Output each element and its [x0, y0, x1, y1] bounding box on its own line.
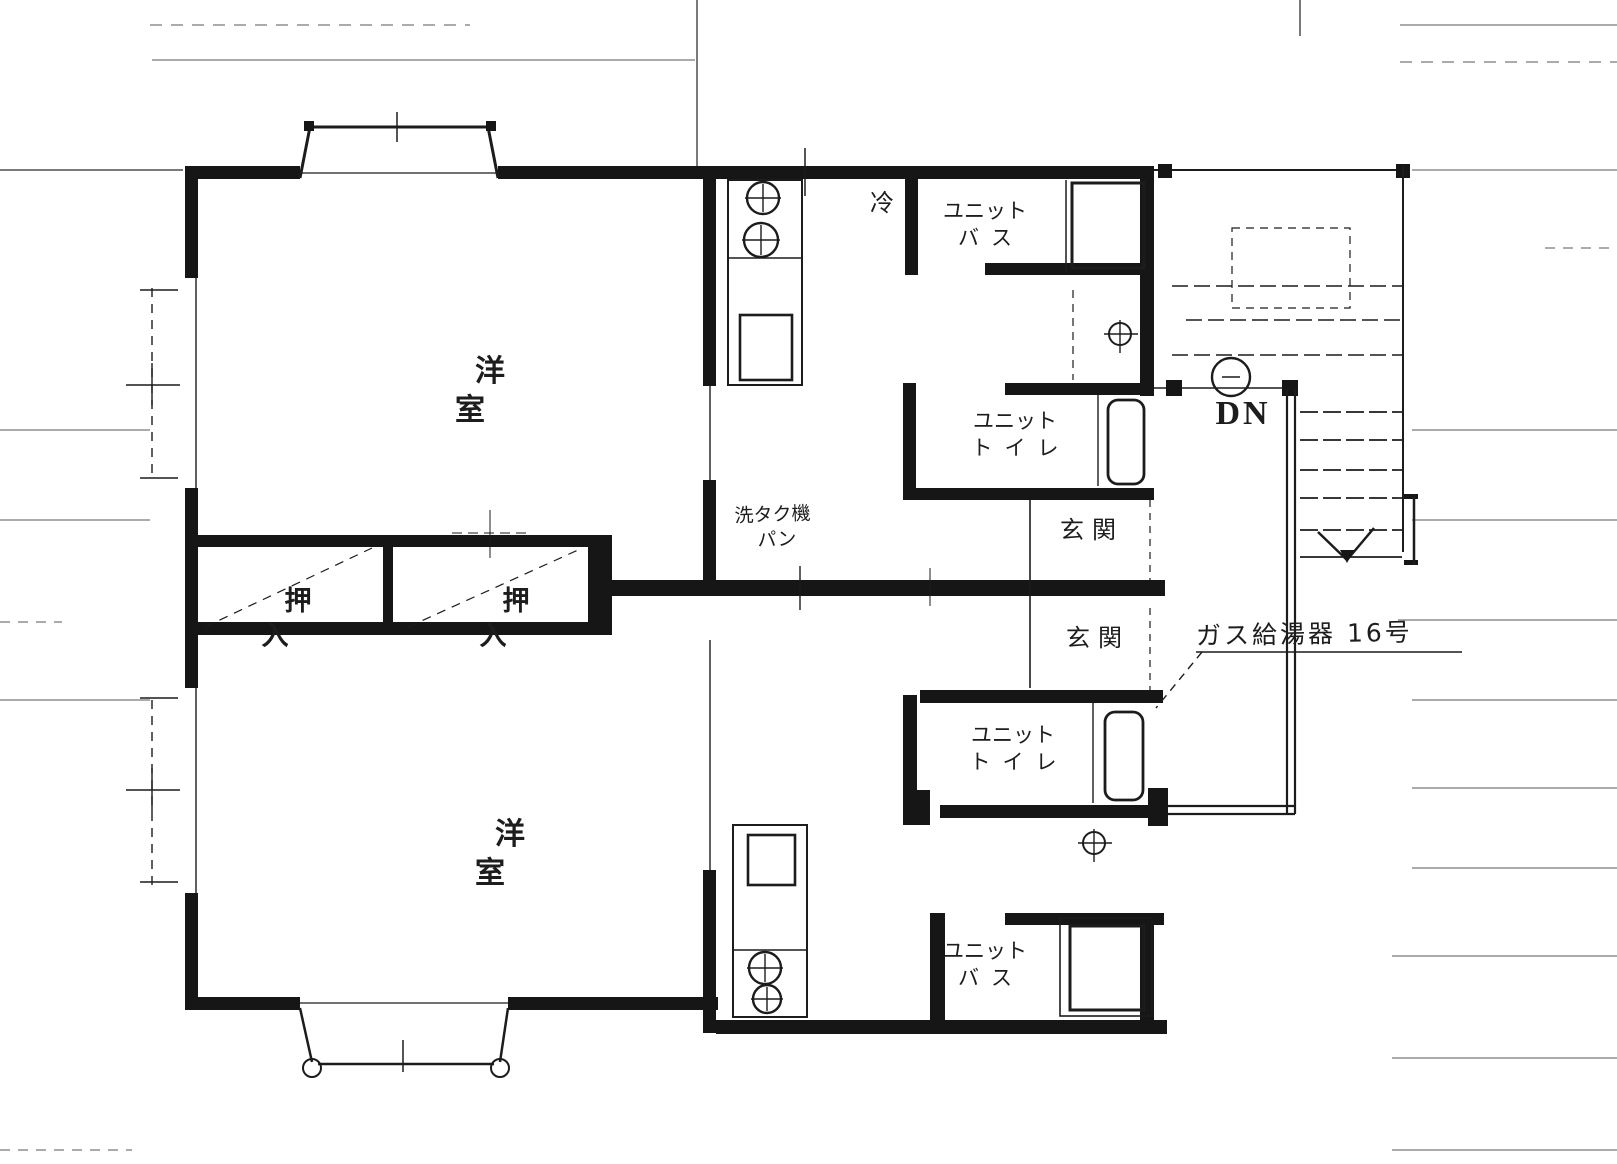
room-label-unit-toilet-lower: ユニット トイレ [943, 722, 1083, 777]
refrigerator-label: 冷 [860, 188, 904, 219]
room-label-entrance-upper: 玄関 [1040, 515, 1144, 546]
unit-bath-upper-line1: ユニット [915, 198, 1055, 225]
bay-window-bottom [300, 1008, 509, 1077]
toilet-fixture-lower [1093, 700, 1143, 803]
room-label-unit-bath-upper: ユニット バス [915, 198, 1055, 253]
unit-bath-lower-line1: ユニット [915, 938, 1055, 965]
unit-toilet-lower-line1: ユニット [943, 722, 1083, 749]
kitchen-lower [733, 825, 807, 1017]
bathtub-lower [1060, 918, 1152, 1016]
unit-toilet-upper-line1: ユニット [945, 408, 1085, 435]
room-label-western-room-upper: 洋室 [415, 352, 565, 430]
stairs-down-label: DN [1203, 392, 1283, 436]
laundry-pan-line2: パン [735, 525, 856, 554]
room-label-unit-bath-lower: ユニット バス [915, 938, 1055, 993]
floor-plan-canvas: 洋室 洋室 押入 押入 冷 ユニット バス ユニット トイレ 玄関 玄関 ユニッ… [0, 0, 1617, 1164]
room-label-unit-toilet-upper: ユニット トイレ [945, 408, 1085, 463]
room-label-western-room-lower: 洋室 [435, 815, 585, 893]
kitchen-upper [728, 180, 802, 385]
window-left-lower [126, 698, 180, 885]
window-left-upper [126, 288, 180, 480]
bathtub-upper [1066, 180, 1144, 272]
railing [1168, 390, 1295, 814]
room-label-entrance-lower: 玄関 [1046, 623, 1150, 654]
toilet-fixture-upper [1098, 395, 1144, 486]
room-label-closet-left: 押入 [228, 584, 368, 654]
unit-bath-upper-line2: バス [915, 225, 1055, 252]
room-label-closet-right: 押入 [446, 584, 586, 654]
unit-toilet-lower-line2: トイレ [943, 749, 1083, 776]
faucet-symbol-upper [1104, 320, 1138, 353]
bay-window-top [300, 112, 498, 178]
unit-toilet-upper-line2: トイレ [945, 435, 1085, 462]
laundry-pan-label: 洗タク機 パン [734, 500, 856, 554]
water-heater-note: ガス給湯器 16号 [1196, 616, 1477, 653]
faucet-symbol-lower [1078, 829, 1112, 862]
unit-bath-lower-line2: バス [915, 965, 1055, 992]
plan-linework [0, 0, 1617, 1164]
